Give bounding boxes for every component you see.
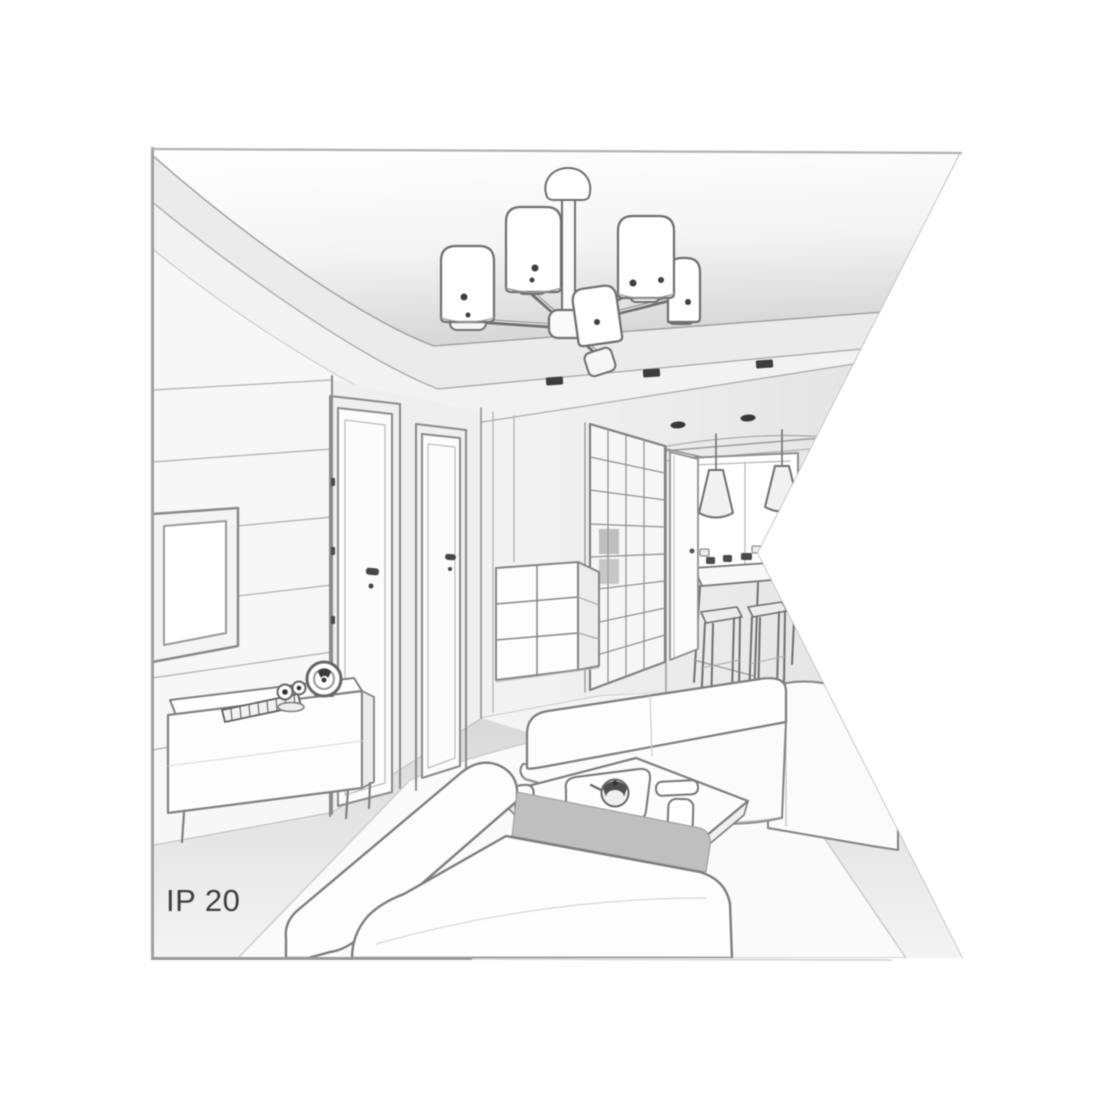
chandelier-canopy (545, 168, 590, 200)
room-line-art (0, 0, 1100, 1100)
door-middle (416, 424, 466, 790)
lamp-shade-icon (571, 284, 623, 347)
remote (656, 780, 699, 796)
lamp-shade-icon (618, 216, 674, 298)
clock (307, 662, 341, 696)
spotlight-icon (643, 368, 661, 377)
spotlight-icon (546, 376, 564, 385)
ip-rating-label: IP 20 (166, 883, 240, 919)
spotlight-icon (756, 359, 774, 368)
product-illustration: IP 20 (0, 0, 1100, 1100)
tv-frame (152, 508, 238, 662)
illustration-canvas: IP 20 (0, 0, 1100, 1100)
hallway-door (666, 449, 702, 660)
door-handle-icon (690, 549, 695, 554)
lamp-shade-icon (441, 246, 494, 322)
drawer-chest (496, 562, 599, 682)
